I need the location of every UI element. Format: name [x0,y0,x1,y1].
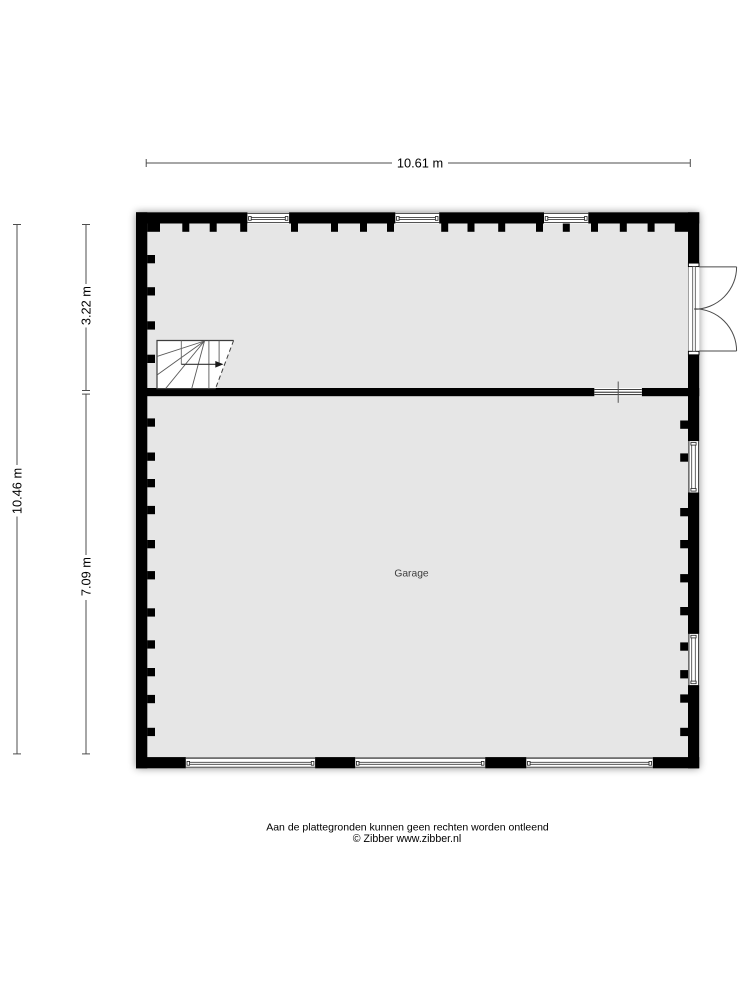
svg-text:7.09 m: 7.09 m [78,557,93,596]
svg-text:10.61 m: 10.61 m [397,155,443,170]
svg-text:© Zibber www.zibber.nl: © Zibber www.zibber.nl [353,833,462,845]
svg-text:10.46 m: 10.46 m [9,468,24,514]
svg-text:Aan de plattegronden kunnen ge: Aan de plattegronden kunnen geen rechten… [266,821,549,833]
svg-text:3.22 m: 3.22 m [78,286,93,325]
svg-text:Garage: Garage [394,569,429,580]
